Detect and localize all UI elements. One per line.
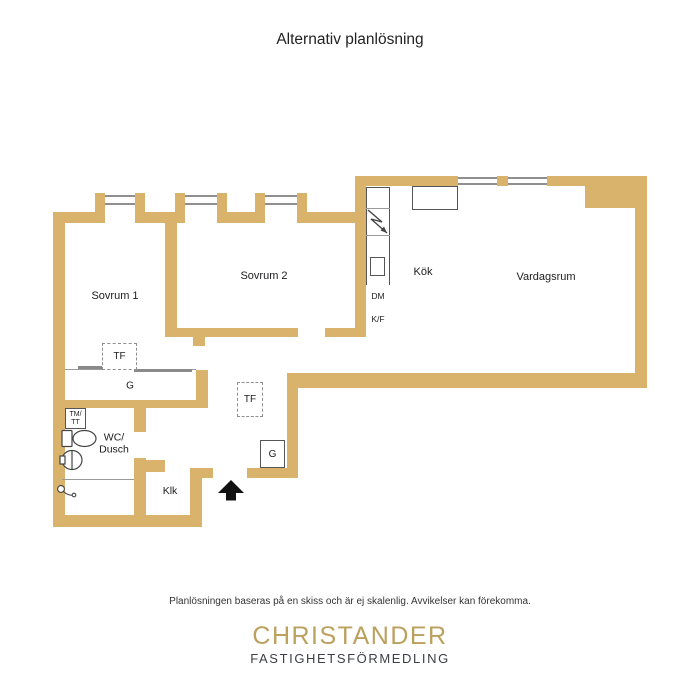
hall-wardrobe: G [260,440,285,468]
wall [255,193,265,223]
shower-partition [62,479,134,480]
wall [53,212,95,223]
room-label-livingroom: Vardagsrum [516,271,575,283]
window-icon [508,177,547,179]
disclaimer-text: Planlösningen baseras på en skiss och är… [0,596,700,607]
brand-name: CHRISTANDER [0,624,700,649]
wall [193,337,205,346]
wall [355,176,366,333]
wall [287,388,298,478]
wall [355,176,458,186]
kitchen-sink [370,257,385,276]
tf-box-hall: TF [237,382,263,417]
kitchen-unit [412,186,458,210]
wall [217,193,227,223]
wall [497,176,508,186]
wall [247,468,298,478]
window-icon [458,183,497,185]
wall [165,328,298,337]
wall [135,193,145,223]
tf-label: TF [113,351,125,362]
window-icon [105,195,135,197]
window-icon [508,183,547,185]
wall [585,176,647,208]
dishwasher: DM [366,285,390,307]
window-icon [185,203,217,205]
entrance-arrow-icon [218,480,244,501]
bathroom-label-line2: Dusch [99,444,129,456]
window-icon [105,203,135,205]
window-icon [458,177,497,179]
room-label-bedroom1: Sovrum 1 [91,290,138,302]
room-label-bathroom: WC/ Dusch [99,432,129,456]
window-icon [265,203,297,205]
wall [196,370,208,400]
brand-tagline: FASTIGHETSFÖRMEDLING [0,652,700,665]
window-icon [185,195,217,197]
washer-dryer: TM/ TT [65,408,86,429]
dryer-label: TT [71,419,80,427]
toilet-icon [62,431,96,447]
window-icon [265,195,297,197]
room-label-wardrobe: G [126,380,134,391]
wall [202,468,213,478]
wall [547,176,589,186]
wall [134,408,146,432]
wall [95,193,105,223]
wall [53,515,202,527]
dishwasher-label: DM [371,291,384,301]
tf-box-bedroom1: TF [102,343,137,370]
page-title: Alternativ planlösning [0,31,700,49]
wall [287,373,647,388]
wall [165,212,177,330]
bathroom-label-line1: WC/ [99,432,129,444]
counter-divider [366,208,390,209]
wall [227,212,255,223]
wardrobe-label: G [269,449,277,460]
room-label-kitchen: Kök [414,266,433,278]
fridge-freezer-label: K/F [371,314,384,324]
counter-divider [366,235,390,236]
washer-label: TM/ [69,411,81,419]
sliding-door-icon [134,369,192,372]
room-label-closet: Klk [163,486,178,498]
wall [65,400,208,408]
wall [297,193,307,223]
wall [134,460,165,472]
wall [635,208,647,375]
brand-logo: CHRISTANDER FASTIGHETSFÖRMEDLING [0,624,700,665]
tf-label: TF [244,394,256,405]
floor-plan-page: Alternativ planlösning [0,0,700,700]
room-label-bedroom2: Sovrum 2 [240,270,287,282]
wall [190,468,202,515]
fridge-freezer: K/F [366,307,390,330]
